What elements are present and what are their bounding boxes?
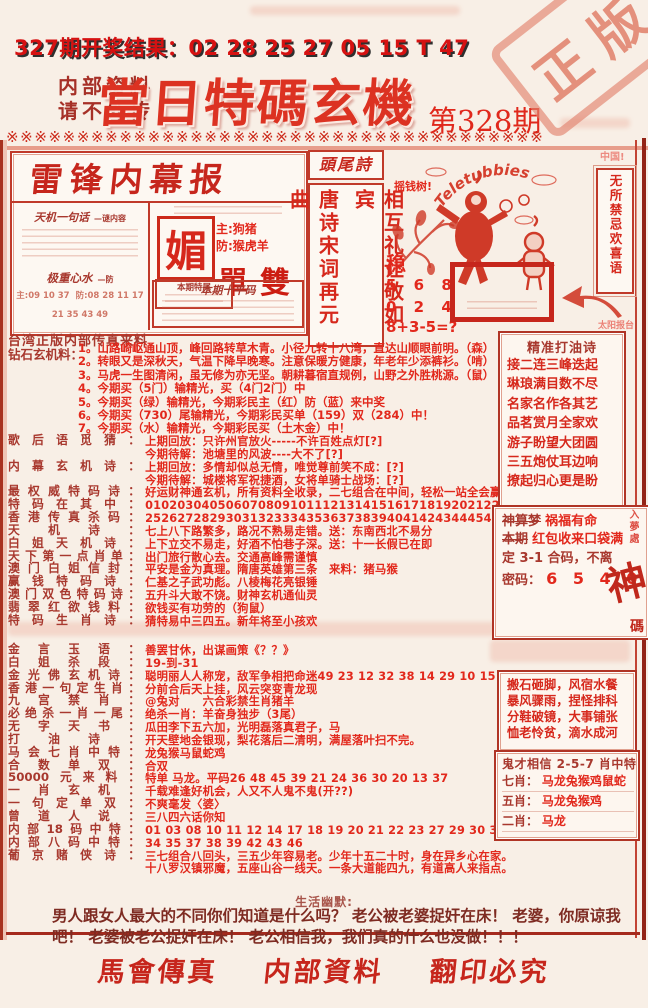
period-label: 本期 [502,532,528,547]
zodiac-pick-row: 二肖： 马龙 [502,812,634,832]
stamp-text: 正版 [515,0,648,114]
zodiac-pick-values: 马龙兔猴鸡鼠蛇 [542,774,626,788]
info-row: 内部18码中特： 01 03 08 10 11 12 14 17 18 19 2… [8,823,494,836]
dream-oracle-box: 神算梦 祸福有命 本期 红包收来口袋满 定 3-1 合码，不离 密码： 6 5 … [492,505,648,640]
arrow-icon [560,282,626,322]
info-row: 翡翠红欲钱料： 欲钱买有功劳的（狗鼠） [8,601,494,614]
stable-row-1: 5 6 8 [386,276,458,294]
info-row: 内部八码中特： 34 35 37 38 39 42 43 46 [8,836,494,849]
info-row: 香港传真杀码： 25262728293031323334353637383940… [8,511,494,524]
info-row-label: 白姐天机诗： [8,537,140,550]
info-row-text: 十八罗汉镇邪魔，五座山谷一线天。一条大道能四九，有道高人来指点。 [145,862,513,875]
ten-flat-codes-label: 本期十平码 [154,282,302,298]
zodiac-pick-values: 马龙 [542,814,566,828]
info-row-text: 今期待解：池塘里的风波----大不了[?] [145,448,343,461]
info-row-text: 01 03 08 10 11 12 14 17 18 19 20 21 22 2… [145,824,505,837]
info-row-text: 龙兔猴马鼠蛇鸡 [145,747,225,760]
oil-poem-title: 精准打油诗 [500,337,624,356]
info-row-text: 34 35 37 38 39 42 43 46 [145,837,303,850]
diamond-list-item: 1。山路崎岖通山顶，峰回路转草木青。小径九转十八湾，直达山顺眼前明。（森） [78,342,494,355]
dream-label: 神算梦 [502,514,541,529]
diamond-list: 1。山路崎岖通山顶，峰回路转草木青。小径九转十八湾，直达山顺眼前明。（森） 2。… [78,342,494,436]
oil-poem-box: 精准打油诗 接二连三峰迭起琳琅满目数不尽名家名作各其艺品茗赏月全家欢游子盼望大团… [498,331,626,511]
happy-phrases-box: 无所禁忌欢喜语 [596,168,634,294]
happy-phrases-text: 无所禁忌欢喜语 [606,174,625,292]
diamond-list-item: 6。今期买（730）尾输精光，今期彩民买单（159）双（284）中！ [78,409,494,422]
oil-poem-line: 游子盼望大团圆 [500,434,624,453]
diamond-list-item: 5。今期买（绿）输精光，今期彩民主（红）防（蓝）来中奖 [78,396,494,409]
ghost-belief-box: 鬼才相信 2-5-7 肖中特 七肖： 马龙兔猴鸡鼠蛇 五肖： 马龙兔猴鸡 二肖：… [494,750,640,841]
sun-press-note: 太阳报台 [598,318,634,331]
info-row-label: 歌后语觅猜： [8,434,140,447]
info-row-label: 内幕玄机诗： [8,460,140,473]
info-row: 无字天书： 瓜田李下五六加，光明磊落真君子，马 [8,720,494,733]
masthead-title: 雷锋内幕报 [27,153,232,201]
page-title: 當日特碼玄機 [95,62,418,136]
humor-text: 男人跟女人最大的不同你们知道是什么吗？ 老公被老婆捉奸在床！ 老婆，你原谅我吧！… [52,906,636,948]
leifeng-insider-report-box: 雷锋内幕报 天机一句话 —谜内容 极重心水 —防 主:09 10 37 防:08… [10,151,308,336]
info-row-label: 内部八码中特： [8,836,140,849]
asterisk-separator: ※※※※※※※※※※※※※※※※※※※※※※※※※※※※※※※※※※※※※※ [6,128,646,146]
info-row: 白姐杀段： 19-到-31 [8,656,494,669]
main-zodiac-line: 主:狗猪 [216,221,269,238]
idiom-line: 恤老怜贫，滴水成河 [507,725,635,741]
oil-poem-line: 名家名作各其艺 [500,395,624,414]
info-row: 内幕玄机诗： 上期回放：多情却似总无情，唯觉尊前笑不成：[?] [8,460,494,473]
oil-poem-line: 三五炮仗耳边响 [500,453,624,472]
footer-internal-material: 内部資料 [262,950,386,989]
idiom-line: 搬石砸脚，风宿水餐 [507,677,635,693]
smudge-top [250,6,460,15]
oil-poem-line: 品茗赏月全家欢 [500,414,624,433]
god-character: 神 [600,547,648,613]
info-row-label: 打油诗： [8,733,140,746]
china-note: 中国! [600,148,625,163]
info-row-text: 猜特易中三四五。新年将至小孩欢 [145,615,317,628]
info-row-text: 聪明丽人人称宠，敌军争相把命迷49 23 12 32 38 14 29 10 1… [145,670,536,683]
heavy-water-main-numbers: 主:09 10 37 [16,289,69,301]
info-row-label: 香港传真杀码： [8,511,140,524]
info-row-text: 上下立交不易走，好酒不怕巷子深。送：十一长假已在即 [145,538,432,551]
code-character: 碼 [630,616,644,636]
diamond-list-item: 2。转眼又是深秋天，气温下降早晚寒。注意保暖方健康，年老年少添裤衫。（啃） [78,355,494,368]
info-row-label: 金言玉语： [8,643,140,656]
dream-corner-text: 入夢處 [625,509,640,545]
info-row: 天机诗： 七上八下路繁多，路况不熟易走错。送：东南西北不易分 [8,524,494,537]
diamond-list-item: 3。马虎一生图清闲，虽无修为亦无坚。朝耕暮宿直规例，山野之外胜桃源。（鼠） [78,369,494,382]
mei-character-box: 媚 [157,216,215,280]
guard-zodiac-line: 防:猴虎羊 [216,238,269,255]
oil-poem-line: 接二连三峰迭起 [500,356,624,375]
head-tail-poem-panel: 頭尾詩 唐诗宋词再元曲 相互礼让敬如宾 [308,150,384,347]
zodiac-pick-row: 五肖： 马龙兔猴鸡 [502,792,634,812]
empty-result-frame [450,262,554,322]
smudge-right-col [490,640,630,662]
stable-label: 稳 [386,248,406,277]
oil-poem-line: 琳琅满目数不尽 [500,375,624,394]
zodiac-pick-values: 马龙兔猴鸡 [542,794,602,808]
info-row: 曾道人说： 三八四六话你知 [8,810,494,823]
mei-character: 媚 [165,218,207,279]
info-row-label: 特码生肖诗： [8,614,140,627]
faint-header-line [174,206,282,214]
info-row: 今期待解：池塘里的风波----大不了[?] [8,447,494,460]
footer-jockey-club-fax: 馬會傳真 [96,950,220,989]
info-row: 打油诗： 开天壁地金银现，梨花落后二清明，满屋落叶扫不完。 [8,733,494,746]
ten-flat-codes-box: 本期十平码 [152,280,304,328]
zodiac-pick-label: 二肖： [502,814,538,828]
heavy-water-row2: 21 35 43 49 [52,310,108,320]
info-row-text: 19-到-31 [145,657,199,670]
info-row: 歌后语觅猜： 上期回放：只许州官放火-----不许百姓点灯[?] [8,434,494,447]
info-row-label: 曾道人说： [8,810,140,823]
info-row-label: 内部18码中特： [8,823,140,836]
diamond-list-item: 4。今期买（5门）输精光，买（4门2门）中 [78,382,494,395]
info-lines-block-2: 金言玉语： 善罢甘休，出谋画策《？？》 白姐杀段： 19-到-31 金光佛玄机诗… [8,643,494,874]
info-row-label: 无字天书： [8,720,140,733]
dream-line-1: 祸福有命 [545,514,597,529]
heavy-water-label: 极重心水 [46,271,92,285]
info-lines-block-1: 歌后语觅猜： 上期回放：只许州官放火-----不许百姓点灯[?] 今期待解：池塘… [8,434,494,627]
head-tail-poem-header: 頭尾詩 [319,155,373,174]
info-row-label: 葡京赌侠诗： [8,849,140,862]
ghost-box-rows: 七肖： 马龙兔猴鸡鼠蛇 五肖： 马龙兔猴鸡 二肖： 马龙 [502,772,634,832]
poem-column-left: 唐诗宋词再元曲 [285,189,343,345]
diamond-list-label: 钻石玄机料： [8,344,83,363]
tianji-sub: —谜内容 [94,214,126,223]
faint-content-lines [22,229,138,261]
formula-text: 8+3-5=? [386,318,457,336]
password-label: 密码： [502,573,541,588]
idiom-lines: 搬石砸脚，风宿水餐暴风骤雨，捏怪排科分鞋破镜，大事铺张恤老怜贫，滴水成河 [507,677,635,741]
info-row: 葡京赌侠诗： 三七组合八回头，三五少年容易老。少年十五二十时，身在异乡心在家。 [8,849,494,862]
main-guard-zodiac: 主:狗猪 防:猴虎羊 [216,221,269,255]
zodiac-pick-label: 七肖： [502,774,538,788]
info-row-label: 金光佛玄机诗： [8,669,140,682]
heavy-water-sub: —防 [98,275,114,284]
frame-faint-caption [467,301,537,309]
ghost-box-title: 鬼才相信 2-5-7 肖中特 [502,755,634,772]
zodiac-pick-row: 七肖： 马龙兔猴鸡鼠蛇 [502,772,634,792]
previous-draw-result: 327期开奖结果：02 28 25 27 05 15 T 47 [14,32,469,62]
idiom-line: 暴风骤雨，捏怪排科 [507,693,635,709]
idiom-box: 搬石砸脚，风宿水餐暴风骤雨，捏怪排科分鞋破镜，大事铺张恤老怜贫，滴水成河 [497,670,637,753]
ten-flat-codes-faint-text [162,300,294,322]
dream-line-2: 红包收来口袋满 [532,532,623,547]
info-row: 金光佛玄机诗： 聪明丽人人称宠，敌军争相把命迷49 23 12 32 38 14… [8,669,494,682]
oil-poem-line: 撩起归心更是盼 [500,472,624,491]
info-row-text: 七上八下路繁多，路况不熟易走错。送：东南西北不易分 [145,525,432,538]
info-row-text: 上期回放：多情却似总无情，唯觉尊前笑不成：[?] [145,461,404,474]
footer-no-reprint: 翻印必究 [428,950,552,989]
heavy-water-guard-numbers: 防:08 28 11 17 [76,289,144,301]
info-row-label: 白姐杀段： [8,656,140,669]
tianji-label: 天机一句话 [34,211,89,224]
idiom-line: 分鞋破镜，大事铺张 [507,709,635,725]
info-row: 白姐天机诗： 上下立交不易走，好酒不怕巷子深。送：十一长假已在即 [8,537,494,550]
info-row-text: 开天壁地金银现，梨花落后二清明，满屋落叶扫不完。 [145,734,421,747]
teletubbies-artwork: Teletubbies [384,150,564,338]
left-border-strip [3,140,7,940]
info-row-label: 翡翠红欲钱料： [8,601,140,614]
info-row-label: 马会七肖中特： [8,746,140,759]
stable-row-2: 0 2 4 [386,298,458,316]
info-row: 马会七肖中特： 龙兔猴马鼠蛇鸡 [8,746,494,759]
info-row: 特码生肖诗： 猜特易中三四五。新年将至小孩欢 [8,614,494,627]
money-tree-caption: 摇钱树! [394,178,432,194]
zodiac-pick-label: 五肖： [502,794,538,808]
oil-poem-lines: 接二连三峰迭起琳琅满目数不尽名家名作各其艺品茗赏月全家欢游子盼望大团圆三五炮仗耳… [500,356,624,492]
footer: 馬會傳真 内部資料 翻印必究 [0,950,648,989]
info-row: 十八罗汉镇邪魔，五座山谷一线天。一条大道能四九，有道高人来指点。 [8,861,494,874]
info-row: 金言玉语： 善罢甘休，出谋画策《？？》 [8,643,494,656]
info-row-label: 天机诗： [8,524,140,537]
